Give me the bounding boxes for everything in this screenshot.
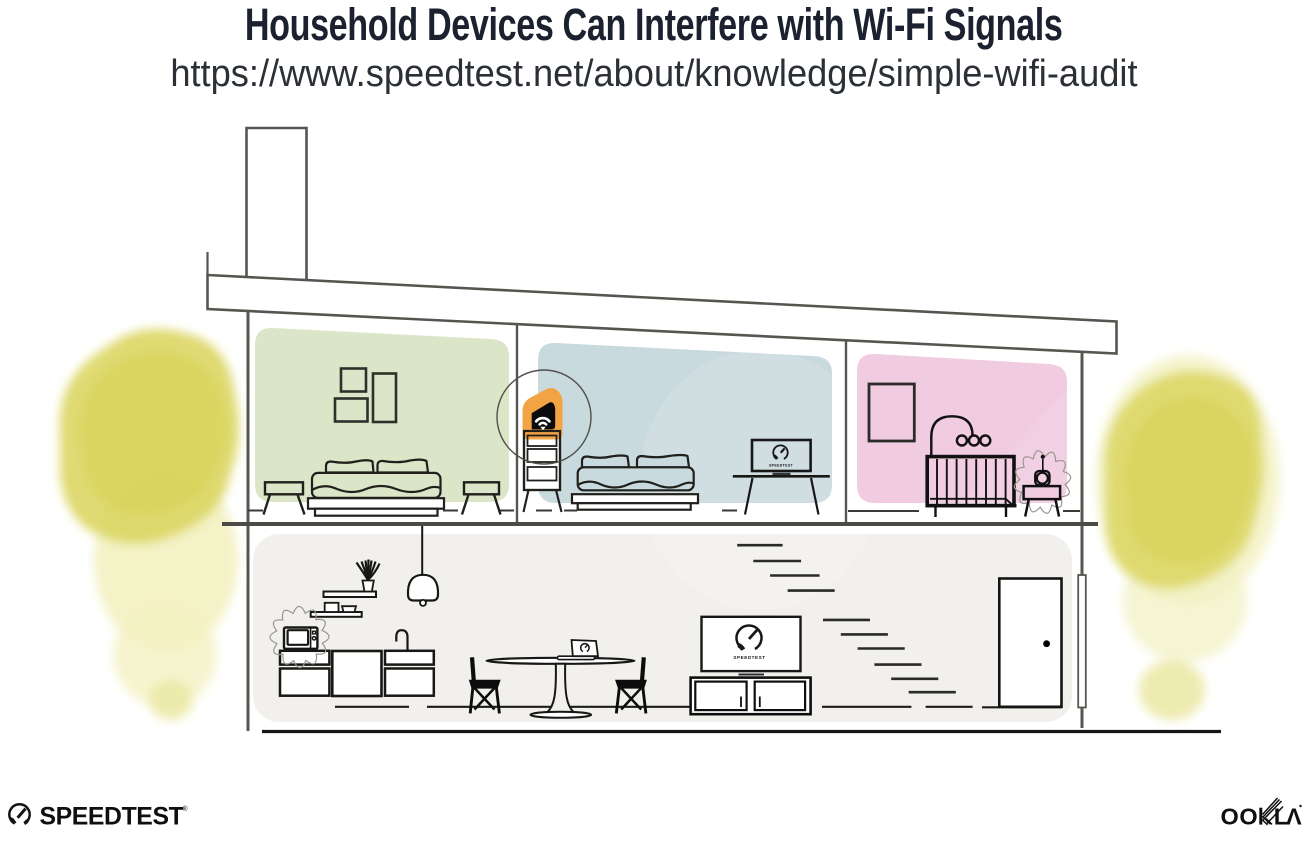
svg-text:SPEEDTEST: SPEEDTEST [769,464,794,468]
svg-text:SPEEDTEST: SPEEDTEST [733,655,765,660]
svg-text:Λ: Λ [1286,804,1302,830]
svg-text:®: ® [183,805,189,813]
svg-text:SPEEDTEST: SPEEDTEST [40,804,184,831]
svg-text:OO: OO [1221,804,1259,830]
